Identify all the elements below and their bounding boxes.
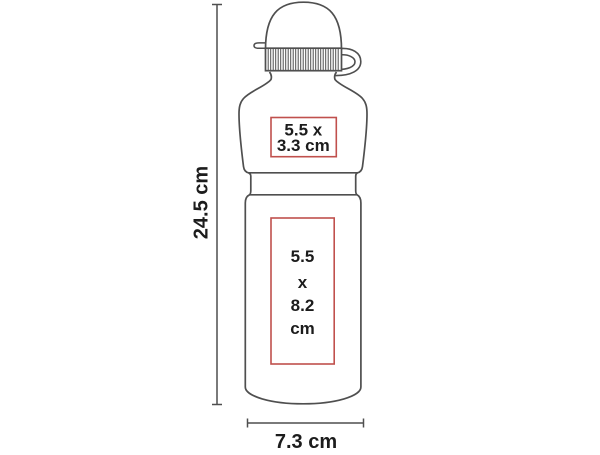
svg-text:7.3 cm: 7.3 cm [275, 431, 337, 450]
svg-text:x: x [298, 273, 308, 292]
svg-text:5.5: 5.5 [291, 247, 315, 266]
svg-text:3.3 cm: 3.3 cm [277, 136, 330, 155]
svg-text:cm: cm [290, 319, 315, 338]
svg-text:24.5 cm: 24.5 cm [191, 166, 213, 239]
svg-text:8.2: 8.2 [291, 296, 315, 315]
